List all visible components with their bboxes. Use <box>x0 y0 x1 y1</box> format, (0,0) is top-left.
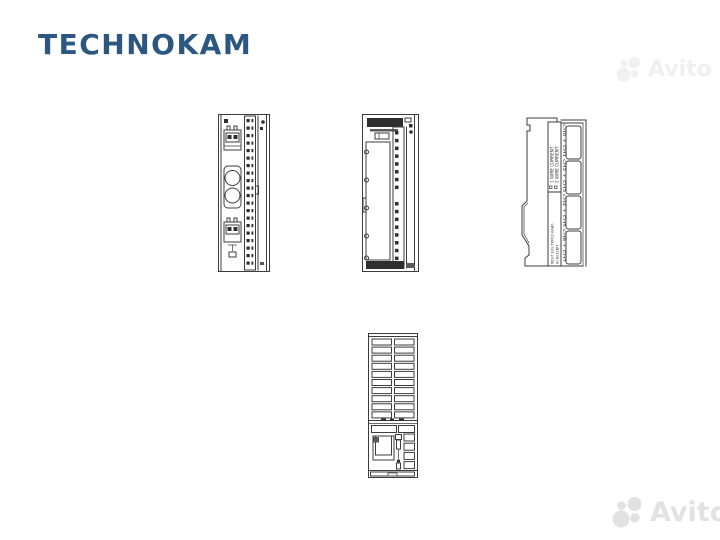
terminal-strip <box>245 116 259 270</box>
avito-logo-icon <box>612 496 644 528</box>
fuse-holder <box>224 166 241 208</box>
avito-logo-icon <box>616 56 642 82</box>
watermark-bottom-label: Avito <box>650 497 720 528</box>
terminal-strip <box>393 127 404 268</box>
bottom-connector <box>224 218 241 257</box>
label-rows-left <box>372 339 392 418</box>
watermark-top: Avito <box>616 56 712 82</box>
mounting-dot <box>409 130 413 134</box>
top-connector <box>224 126 241 150</box>
wide-slot <box>372 426 397 433</box>
terminal-steps <box>404 434 415 469</box>
brand-logo: TECHNOKAM <box>38 28 252 61</box>
bottom-label-block <box>366 261 404 269</box>
side-label-strip: 1 WIRE CURRENT 2 WIRE CURRENT 6ES7 331-7… <box>548 122 561 266</box>
module-drawing-side: 1 WIRE CURRENT 2 WIRE CURRENT 6ES7 331-7… <box>519 116 588 268</box>
module-type-label: AI 8x12BIT <box>556 244 560 264</box>
config-switch <box>375 133 389 139</box>
divider-band <box>369 419 418 424</box>
label-rows-right <box>395 339 415 418</box>
top-label-text-row <box>370 129 398 132</box>
bottom-order-number <box>406 263 415 268</box>
right-panel <box>407 115 415 272</box>
wire-current-label-2: 2 WIRE CURRENT <box>555 146 560 183</box>
module-drawing-front-middle <box>362 114 419 272</box>
watermark-bottom: Avito <box>612 496 720 528</box>
module-drawing-front-bottom <box>368 333 418 478</box>
mounting-dot <box>261 120 265 124</box>
part-number-label: 6ES7 331-7KF02-0AB0 <box>551 223 555 264</box>
label-x1 <box>224 119 228 123</box>
locking-mechanism <box>396 435 402 470</box>
right-panel <box>258 115 267 272</box>
top-label-block <box>367 118 403 127</box>
front-cover <box>363 142 390 260</box>
module-drawing-front-left <box>218 114 270 272</box>
watermark-top-label: Avito <box>648 57 712 82</box>
bus-connector <box>373 436 394 460</box>
bottom-band <box>369 471 418 477</box>
